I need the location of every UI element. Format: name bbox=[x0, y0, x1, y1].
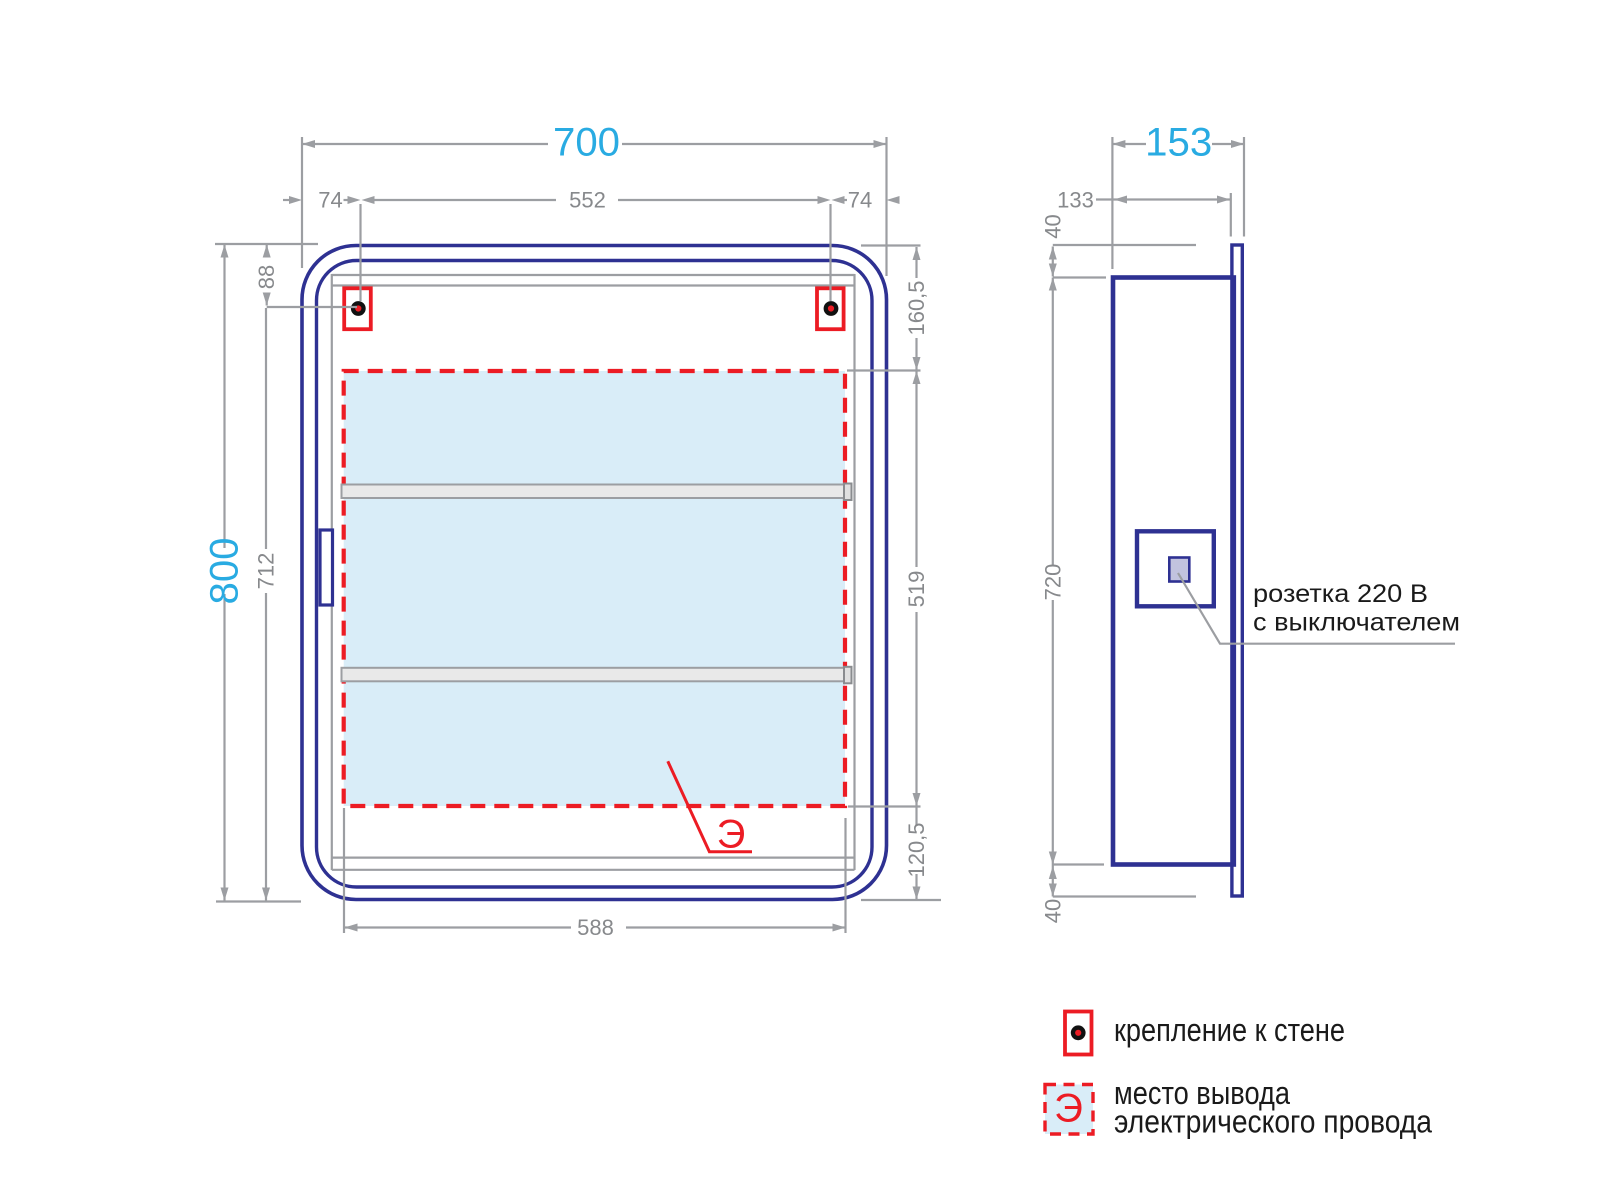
svg-text:электрического провода: электрического провода bbox=[1114, 1104, 1432, 1140]
svg-text:552: 552 bbox=[569, 188, 606, 213]
svg-text:40: 40 bbox=[1040, 214, 1065, 238]
svg-text:153: 153 bbox=[1145, 121, 1212, 165]
svg-text:160,5: 160,5 bbox=[904, 280, 929, 335]
svg-text:40: 40 bbox=[1040, 899, 1065, 923]
svg-text:800: 800 bbox=[203, 538, 247, 605]
svg-text:712: 712 bbox=[254, 553, 279, 590]
svg-text:700: 700 bbox=[553, 121, 620, 165]
svg-text:74: 74 bbox=[318, 188, 342, 213]
svg-text:133: 133 bbox=[1057, 188, 1094, 213]
svg-text:120,5: 120,5 bbox=[904, 822, 929, 877]
svg-text:Э: Э bbox=[1054, 1087, 1083, 1131]
svg-text:крепление к стене: крепление к стене bbox=[1114, 1012, 1345, 1048]
svg-text:с выключателем: с выключателем bbox=[1253, 609, 1460, 637]
svg-text:Э: Э bbox=[717, 813, 746, 857]
svg-text:88: 88 bbox=[254, 265, 279, 289]
svg-text:519: 519 bbox=[904, 571, 929, 608]
svg-text:720: 720 bbox=[1040, 564, 1065, 601]
svg-text:588: 588 bbox=[577, 915, 614, 940]
svg-text:розетка 220 В: розетка 220 В bbox=[1253, 580, 1428, 608]
svg-text:74: 74 bbox=[848, 188, 872, 213]
